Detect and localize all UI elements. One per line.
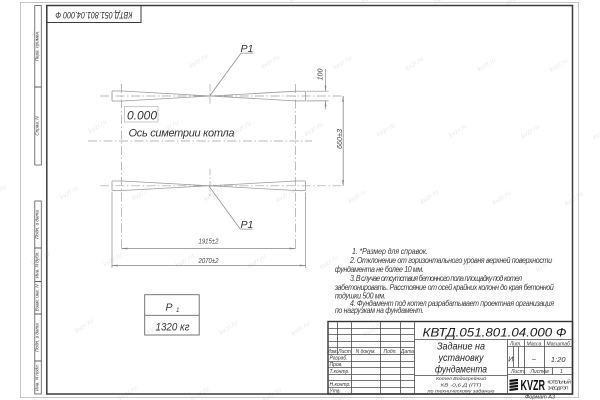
svg-text:Перв. примен.: Перв. примен. (35, 31, 40, 62)
svg-text:kvzr.ru: kvzr.ru (404, 55, 425, 72)
svg-text:kvzr.ru: kvzr.ru (376, 122, 397, 139)
svg-text:kvzr.ru: kvzr.ru (131, 185, 152, 202)
svg-text:kvzr.ru: kvzr.ru (102, 251, 123, 268)
svg-text:Лит.: Лит. (509, 342, 522, 348)
svg-text:1915±2: 1915±2 (199, 237, 220, 246)
svg-text:Взам. инв. N: Взам. инв. N (35, 284, 40, 311)
svg-text:ЗАВОД РЭП: ЗАВОД РЭП (548, 386, 570, 392)
svg-text:kvzr.ru: kvzr.ru (290, 320, 311, 337)
svg-text:Р: Р (165, 302, 172, 314)
svg-text:Инв. N подл.: Инв. N подл. (35, 364, 40, 391)
svg-text:Дата: Дата (400, 349, 414, 355)
svg-text:Р1: Р1 (241, 219, 254, 231)
svg-text:kvzr.ru: kvzr.ru (247, 253, 268, 270)
svg-text:Н.контр.: Н.контр. (330, 382, 351, 388)
svg-text:КОТЕЛЬНЫЙ: КОТЕЛЬНЫЙ (548, 377, 572, 385)
svg-text:1:20: 1:20 (551, 355, 566, 364)
svg-text:kvzr.ru: kvzr.ru (0, 183, 8, 200)
svg-text:KVZR: KVZR (521, 377, 546, 394)
svg-text:kvzr.ru: kvzr.ru (231, 120, 252, 137)
svg-text:Справ. N: Справ. N (35, 116, 40, 136)
svg-text:Масса: Масса (527, 342, 542, 348)
svg-text:установку: установку (438, 353, 485, 364)
svg-text:kvzr.ru: kvzr.ru (520, 123, 541, 140)
svg-text:фундамента: фундамента (435, 363, 487, 375)
svg-text:Утв.: Утв. (330, 389, 341, 395)
svg-text:1: 1 (176, 308, 179, 314)
svg-text:Лист: Лист (337, 349, 351, 355)
svg-text:по техническому заданию: по техническому заданию (428, 389, 495, 395)
svg-text:kvzr.ru: kvzr.ru (563, 190, 584, 207)
svg-text:kvzr.ru: kvzr.ru (419, 189, 440, 206)
svg-text:Масштаб: Масштаб (547, 342, 571, 348)
svg-text:1: 1 (560, 369, 563, 375)
svg-text:Подп.: Подп. (384, 349, 397, 355)
svg-text:kvzr.ru: kvzr.ru (188, 53, 209, 70)
svg-text:Пров.: Пров. (330, 362, 343, 368)
svg-text:kvzr.ru: kvzr.ru (476, 56, 497, 73)
svg-text:kvzr.ru: kvzr.ru (59, 184, 80, 201)
svg-text:Листов: Листов (530, 369, 550, 375)
svg-text:Котел Водогрейный: Котел Водогрейный (436, 375, 486, 382)
svg-text:660±3: 660±3 (335, 128, 344, 149)
svg-text:1320 кг: 1320 кг (156, 322, 191, 334)
svg-text:kvzr.ru: kvzr.ru (74, 318, 95, 335)
svg-text:Разраб.: Разраб. (330, 356, 348, 362)
svg-text:по нагрузкам на фундамент.: по нагрузкам на фундамент. (335, 305, 424, 315)
svg-text:Ось симетрии котла: Ось симетрии котла (129, 128, 235, 140)
svg-text:kvzr.ru: kvzr.ru (260, 54, 281, 71)
svg-text:КВТД.051.801.04.000 Ф: КВТД.051.801.04.000 Ф (423, 326, 567, 340)
svg-text:kvzr.ru: kvzr.ru (448, 122, 469, 139)
svg-text:kvzr.ru: kvzr.ru (218, 319, 239, 336)
svg-text:kvzr.ru: kvzr.ru (332, 55, 353, 72)
svg-text:Задание на: Задание на (437, 342, 485, 353)
svg-text:kvzr.ru: kvzr.ru (304, 121, 325, 138)
svg-text:Т.контр.: Т.контр. (330, 369, 350, 375)
svg-text:Подп. и дата: Подп. и дата (35, 323, 40, 352)
svg-text:КВ -0,6 Д (ПТ): КВ -0,6 Д (ПТ) (441, 382, 483, 388)
svg-text:2070±2: 2070±2 (198, 256, 219, 265)
svg-text:100: 100 (317, 69, 324, 81)
svg-text:–: – (531, 356, 536, 363)
svg-text:Р1: Р1 (241, 43, 254, 55)
svg-text:kvzr.ru: kvzr.ru (548, 57, 569, 74)
svg-text:КВТД.051.801.04.000 Ф: КВТД.051.801.04.000 Ф (56, 10, 133, 20)
svg-text:Инв. N дубл.: Инв. N дубл. (35, 252, 40, 279)
svg-text:0.000: 0.000 (127, 109, 157, 123)
svg-text:Формат А3: Формат А3 (525, 395, 556, 400)
svg-text:kvzr.ru: kvzr.ru (203, 186, 224, 203)
svg-text:kvzr.ru: kvzr.ru (87, 118, 108, 135)
svg-text:kvzr.ru: kvzr.ru (592, 124, 600, 141)
svg-text:kvzr.ru: kvzr.ru (491, 190, 512, 207)
svg-text:kvzr.ru: kvzr.ru (174, 252, 195, 269)
svg-text:N докум.: N докум. (356, 349, 376, 355)
svg-text:Подп. и дата: Подп. и дата (35, 210, 40, 239)
svg-text:Изм.: Изм. (327, 349, 338, 355)
svg-text:Лист: Лист (510, 369, 524, 375)
svg-text:kvzr.ru: kvzr.ru (347, 188, 368, 205)
svg-text:kvzr.ru: kvzr.ru (30, 251, 51, 268)
